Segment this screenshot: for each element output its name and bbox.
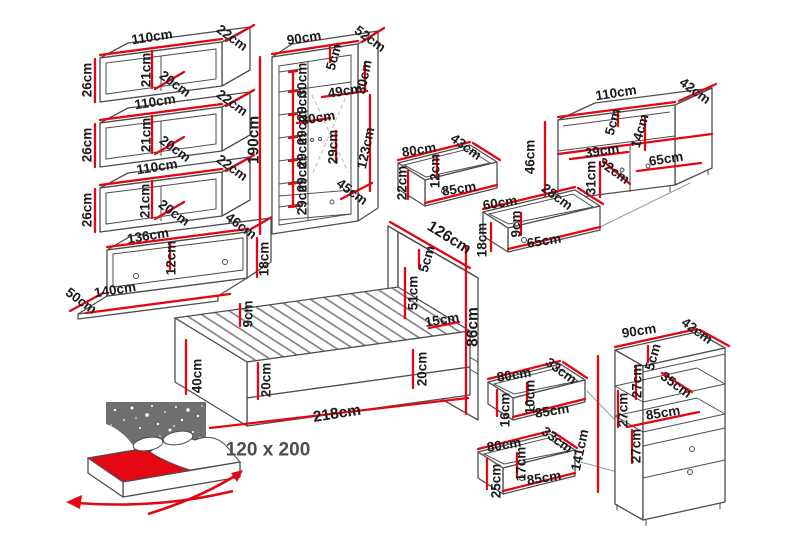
dim-shelf1-height: 26cm (80, 63, 94, 98)
dim-bed-frame-height: 40cm (190, 359, 204, 394)
dim-bed-total-height: 86cm (465, 307, 481, 347)
bed-storage-icon (27, 402, 243, 533)
dim-shelf3-height: 26cm (80, 193, 94, 228)
dim-bookcase-gap2: 27cm (616, 393, 630, 428)
dim-wardrobe-gap-5: 29cm (295, 181, 309, 216)
dim-shelf2-height: 26cm (80, 128, 94, 163)
dim-wardrobe-mid-gap: 29cm (326, 130, 340, 165)
dim-bed-headboard-base: 20cm (415, 352, 429, 387)
dim-walldrawer-height: 18cm (257, 242, 271, 277)
dim-bed-base-height: 20cm (259, 363, 273, 398)
dim-shelf1-inner-height: 21cm (139, 53, 153, 88)
dim-drawer8043-height: 22cm (395, 166, 409, 201)
dim-bed-slat-height: 9cm (241, 300, 255, 327)
dim-drawer6028-height: 18cm (475, 223, 489, 258)
dim-bookcase-gap3: 27cm (629, 429, 643, 464)
dim-bed-headboard-height: 51cm (406, 276, 420, 311)
dim-drawer6028-inner-height: 9cm (509, 210, 523, 237)
mattress-size-label: 120 x 200 (226, 441, 311, 460)
dim-shelf2-inner-height: 21cm (139, 118, 153, 153)
dim-tvstand-inner-height: 31cm (584, 161, 598, 196)
dim-drawer8033b-height: 25cm (489, 464, 503, 499)
dim-tvstand-height: 46cm (523, 140, 537, 175)
bookcase-drawing (598, 329, 729, 526)
dim-wardrobe-height: 190cm (246, 116, 262, 164)
dim-walldrawer-inner-height: 12cm (164, 241, 178, 276)
dim-bookcase-gap1: 27cm (630, 364, 644, 399)
furniture-dimensions-diagram: 110cm 22cm 26cm 21cm 20cm 110cm 22cm 26c… (0, 0, 800, 533)
dim-shelf3-inner-height: 21cm (138, 184, 152, 219)
dim-drawer8033t-height: 16cm (498, 393, 512, 428)
